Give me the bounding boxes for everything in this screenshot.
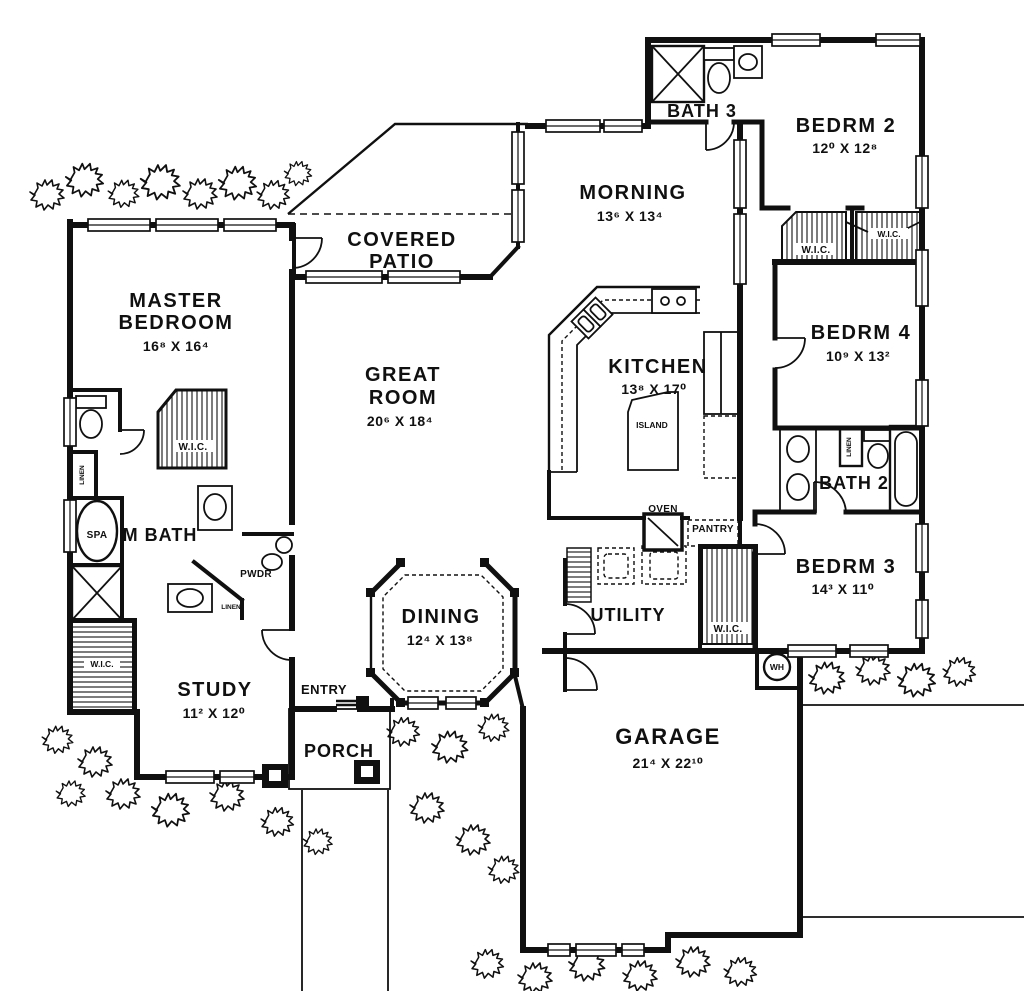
label-oven: OVEN (648, 504, 678, 515)
room-label-bath2: BATH 2 (819, 473, 889, 493)
floor-plan-drawing: BATH 3 BEDRM 2 12⁰ X 12⁸ MORNING 13⁶ X 1… (0, 0, 1024, 991)
label-wic-master: W.I.C. (178, 442, 207, 453)
room-dims-great: 20⁶ X 18⁴ (367, 413, 433, 429)
window (166, 771, 214, 783)
toilet-mbath (80, 410, 102, 438)
window (876, 34, 920, 46)
toilet-tank-bath3 (704, 48, 734, 60)
room-label-covered-patio-2: PATIO (369, 251, 435, 273)
window (224, 219, 276, 231)
room-label-garage: GARAGE (615, 724, 721, 749)
closet-master-wic (158, 390, 226, 468)
room-label-bedrm3: BEDRM 3 (796, 556, 897, 578)
label-wic-utility: W.I.C. (713, 624, 742, 635)
window (734, 214, 746, 284)
porch-column-left (262, 764, 288, 788)
label-island: ISLAND (636, 420, 668, 430)
label-linen-h: LINEN (221, 604, 241, 611)
door-study (262, 630, 292, 660)
room-label-bath3: BATH 3 (667, 101, 737, 121)
window (916, 524, 928, 572)
bath3-fixtures (652, 46, 762, 102)
window (850, 645, 888, 657)
window (916, 600, 928, 638)
room-label-bedrm4: BEDRM 4 (811, 322, 912, 344)
room-label-mbath: M BATH (123, 525, 198, 545)
room-dims-garage: 21⁴ X 22¹⁰ (633, 755, 704, 771)
door-bedrm3 (755, 524, 785, 554)
door-bath3 (706, 122, 734, 150)
toilet-bath2 (868, 444, 888, 468)
kitchen-sink (571, 297, 612, 338)
door-entry (336, 696, 369, 709)
label-wic-left: W.I.C. (90, 659, 113, 669)
utility-counter-hatch (567, 548, 591, 602)
window (622, 944, 644, 956)
room-label-study: STUDY (177, 679, 252, 701)
room-dims-dining: 12⁴ X 13⁸ (407, 632, 473, 648)
window (604, 120, 642, 132)
room-label-entry: ENTRY (301, 682, 347, 697)
door-bedrm4 (775, 338, 805, 368)
room-dims-master: 16⁸ X 16⁴ (143, 338, 209, 354)
label-pantry: PANTRY (692, 524, 734, 535)
fixtures (72, 46, 922, 680)
window (772, 34, 820, 46)
window (408, 697, 438, 709)
room-dims-morning: 13⁶ X 13⁴ (597, 208, 663, 224)
room-label-kitchen: KITCHEN (608, 356, 707, 378)
window (512, 132, 524, 184)
label-spa: SPA (87, 530, 108, 541)
window (156, 219, 218, 231)
room-label-covered-patio-1: COVERED (347, 229, 456, 251)
room-label-bedrm2: BEDRM 2 (796, 115, 897, 137)
room-label-great-2: ROOM (369, 387, 437, 409)
label-linen-bath2: LINEN (846, 437, 853, 457)
window (512, 190, 524, 242)
window (576, 944, 616, 956)
door-master-patio (292, 238, 322, 268)
sink-pwdr (276, 537, 292, 553)
toilet-pwdr (262, 554, 282, 570)
room-dims-bedrm3: 14³ X 11⁰ (812, 581, 875, 597)
room-label-utility: UTILITY (591, 605, 666, 625)
toilet-tank-bath2 (864, 430, 892, 441)
window (446, 697, 476, 709)
window (734, 140, 746, 208)
window (788, 645, 836, 657)
window (88, 219, 150, 231)
window (916, 380, 928, 426)
room-label-morning: MORNING (579, 182, 686, 204)
door-mbath-toilet (120, 430, 144, 454)
label-wh: WH (770, 662, 784, 672)
room-dims-bedrm4: 10⁹ X 13² (826, 348, 890, 364)
door-garage-hall (565, 658, 597, 690)
room-label-porch: PORCH (304, 741, 374, 761)
window (548, 944, 570, 956)
window (64, 500, 76, 552)
room-label-master-2: BEDROOM (119, 312, 234, 334)
cooktop (652, 289, 696, 313)
window (220, 771, 254, 783)
room-dims-bedrm2: 12⁰ X 12⁸ (812, 140, 878, 156)
label-linen-vert: LINEN (79, 465, 86, 485)
kitchen-island (628, 392, 678, 470)
label-pwdr: PWDR (240, 569, 272, 580)
room-label-master-1: MASTER (129, 290, 222, 312)
label-wic-bedrm2-left: W.I.C. (801, 245, 830, 256)
room-dims-kitchen: 13⁸ X 17⁰ (621, 381, 687, 397)
window (916, 156, 928, 208)
window (546, 120, 600, 132)
room-label-great-1: GREAT (365, 364, 441, 386)
room-label-dining: DINING (402, 606, 481, 628)
porch-column-right (354, 760, 380, 784)
toilet-tank-mbath (76, 396, 106, 408)
toilet-bath3 (708, 63, 730, 93)
label-wic-bedrm2-right: W.I.C. (877, 229, 900, 239)
window (64, 398, 76, 446)
floor-plan-page: BATH 3 BEDRM 2 12⁰ X 12⁸ MORNING 13⁶ X 1… (0, 0, 1024, 991)
window (916, 250, 928, 306)
room-dims-study: 11² X 12⁰ (183, 705, 246, 721)
kitchen-fixtures (549, 287, 738, 550)
